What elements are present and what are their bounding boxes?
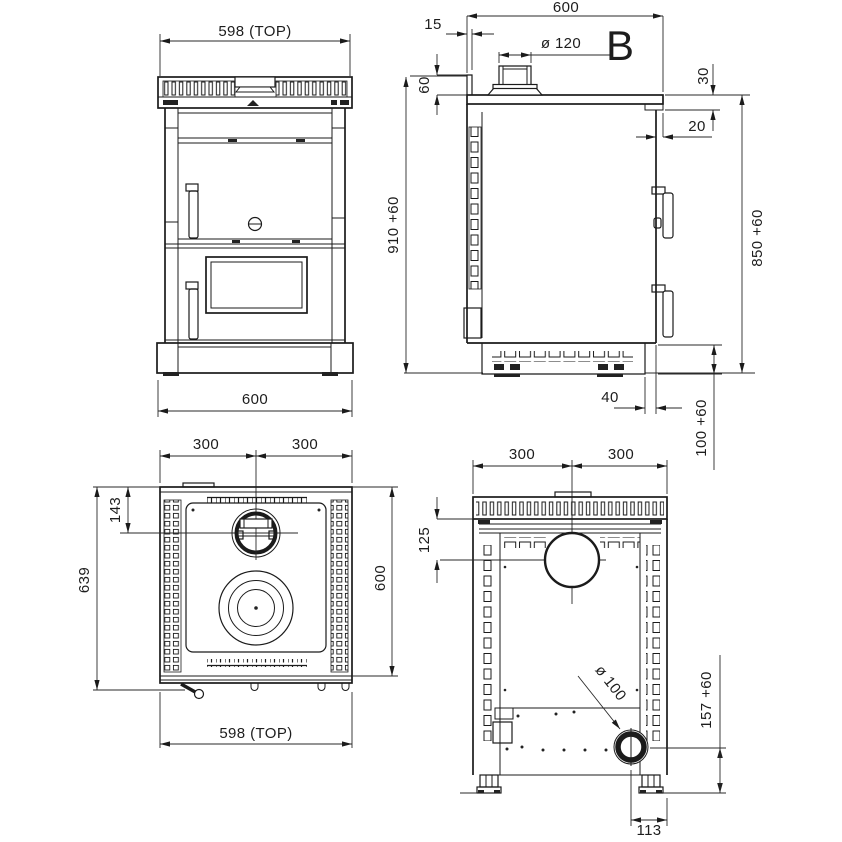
dim-label: 300 — [509, 446, 535, 463]
dim-label: 300 — [193, 436, 219, 453]
flue-collar — [488, 66, 542, 95]
center-mark — [247, 100, 259, 106]
firebox-handle — [189, 191, 198, 238]
dim-label: 598 (TOP) — [219, 725, 292, 742]
side-dim-plinth-height: 100 +60 — [658, 345, 722, 470]
certification-marks — [331, 100, 337, 105]
rear-feet — [460, 775, 726, 793]
rear-grille — [207, 495, 307, 503]
rear-air-outlet: ø 100 — [578, 662, 648, 766]
firebox-handle-bracket — [186, 184, 198, 191]
certification-marks — [163, 100, 178, 105]
dim-label: 15 — [424, 16, 442, 33]
rear-view: 300 300 — [416, 446, 726, 839]
dim-label: 113 — [636, 822, 661, 839]
handle-end — [195, 690, 204, 699]
dim-label: ø 100 — [591, 662, 629, 704]
side-dim-overhang: 20 — [636, 113, 712, 137]
top-flue-opening — [120, 509, 298, 560]
dim-label: 20 — [688, 118, 706, 135]
hotplate — [219, 571, 293, 645]
left-slot-column — [480, 545, 494, 741]
front-grille — [207, 659, 307, 667]
dim-label: 600 — [372, 565, 389, 591]
rear-top-strip — [473, 492, 667, 533]
oven-window — [206, 257, 307, 313]
rear-dim-flue-offset: 125 — [416, 497, 473, 583]
front-plinth — [157, 343, 353, 376]
dim-label: 100 +60 — [693, 399, 710, 456]
dim-label: 300 — [608, 446, 634, 463]
right-vent-strip — [331, 500, 348, 672]
dim-label: 157 +60 — [698, 671, 715, 728]
front-body — [165, 100, 345, 343]
technical-drawing-page: 598 (TOP) — [0, 0, 842, 842]
junction-box-small — [495, 708, 513, 719]
dim-label: 639 — [76, 567, 93, 593]
top-dim-width-bottom: 598 (TOP) — [160, 692, 352, 748]
knob-profile — [654, 218, 661, 228]
front-divider — [165, 239, 345, 248]
dim-label: 300 — [292, 436, 318, 453]
rear-flue-outlet — [545, 533, 599, 587]
side-body — [464, 104, 656, 343]
dim-label: 598 (TOP) — [218, 23, 291, 40]
oven-door — [165, 257, 345, 340]
dim-label: ø 120 — [541, 35, 581, 52]
dim-label: 850 +60 — [749, 209, 766, 266]
top-dim-depth: 600 — [352, 487, 398, 676]
dim-label: 910 +60 — [385, 196, 402, 253]
side-dim-upstand-width: 15 — [424, 16, 494, 70]
front-dim-width-bottom: 600 — [158, 380, 352, 417]
stove-orthographic-views: 598 (TOP) — [0, 0, 842, 842]
rear-dim-outlet-height: 157 +60 — [650, 655, 726, 793]
top-dim-flue-offset: 143 — [107, 487, 160, 533]
oven-handle — [189, 289, 198, 339]
dim-label: 143 — [107, 497, 124, 523]
firebox-door — [165, 184, 345, 238]
section-label: B — [606, 22, 634, 69]
side-dim-flue-diameter: ø 120 — [499, 35, 612, 63]
dim-total-height: 910 +60 — [385, 76, 483, 373]
dim-label: 600 — [553, 0, 579, 16]
top-front-fittings — [181, 683, 349, 699]
side-dim-upstand-height: 60 — [416, 54, 467, 115]
side-plinth — [482, 343, 645, 377]
front-view: 598 (TOP) — [157, 23, 483, 417]
dim-label: 30 — [695, 67, 712, 85]
side-view: 600 15 ø 120 B — [416, 0, 766, 470]
rear-dim-outlet-offset: 113 — [631, 770, 667, 839]
dim-label: 60 — [416, 76, 433, 94]
right-slot-column — [646, 545, 660, 741]
left-vent-strip — [164, 500, 181, 672]
dim-label: 600 — [242, 391, 268, 408]
junction-box — [493, 722, 512, 743]
front-dim-width-top: 598 (TOP) — [160, 23, 350, 76]
certification-marks — [340, 100, 349, 105]
top-view: 300 300 — [76, 436, 398, 748]
dim-label: 40 — [601, 389, 619, 406]
rear-upper-panel — [440, 533, 640, 587]
dim-label: 125 — [416, 527, 433, 553]
oven-handle-bracket — [186, 282, 198, 289]
